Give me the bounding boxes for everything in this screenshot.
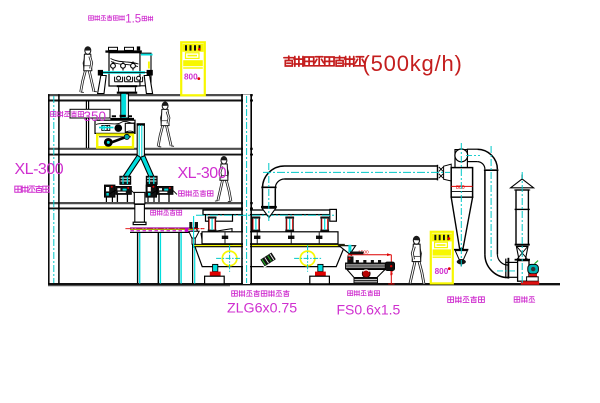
svg-text:800: 800 [184, 73, 198, 82]
svg-text:FS0.6x1.5: FS0.6x1.5 [337, 302, 401, 318]
svg-text:350: 350 [84, 109, 107, 124]
svg-text:800: 800 [456, 185, 465, 191]
svg-text:(500kg/h): (500kg/h) [363, 51, 463, 76]
svg-text:XL-300: XL-300 [178, 165, 227, 182]
svg-text:XL-300: XL-300 [15, 161, 64, 178]
svg-text:ZLG6x0.75: ZLG6x0.75 [227, 301, 297, 317]
svg-text:800: 800 [435, 267, 449, 276]
svg-text:1.5: 1.5 [125, 14, 141, 26]
